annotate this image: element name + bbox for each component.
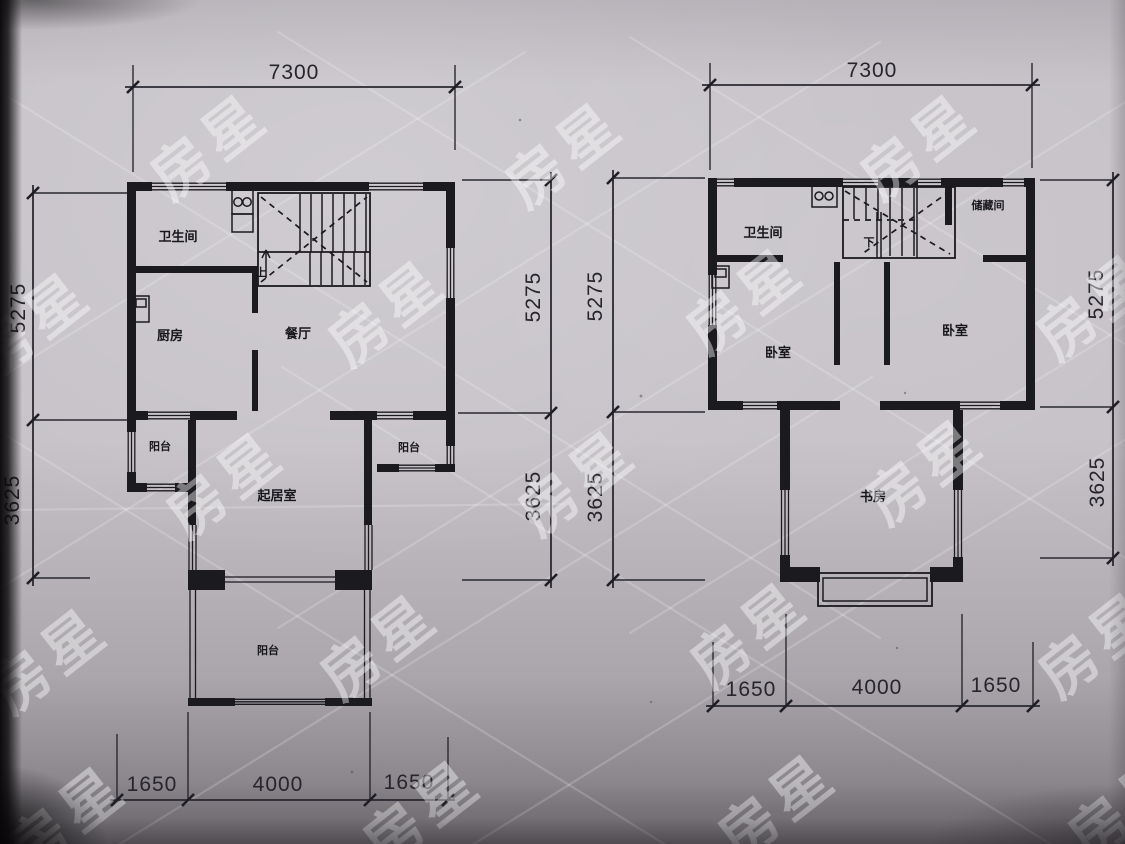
dim-label-side-lower: 3625	[1, 475, 24, 526]
dim-label-bottom-mid: 4000	[852, 676, 903, 699]
left-plan-kitchen-sink	[232, 190, 253, 232]
watermark-text: 房星	[849, 81, 991, 212]
dim-label-side-lower: 3625	[1086, 457, 1109, 508]
floorplan-drawing: 7300 5275 3625 5275 3625	[0, 0, 1125, 844]
watermark-layer: 房星 房星 房星 房星 房星 房星 房星 房星 房星 房星 房星 房星 房星 房…	[0, 81, 1125, 844]
watermark-text: 房星	[494, 89, 636, 220]
room-label-kitchen: 厨房	[157, 328, 183, 343]
stair-direction-up: 上	[256, 265, 267, 279]
dim-label-bottom-mid: 4000	[253, 773, 304, 796]
floorplan-photo: 7300 5275 3625 5275 3625	[0, 0, 1125, 844]
room-label-balcony-right: 阳台	[398, 440, 420, 454]
right-plan-kitchen-sink	[812, 186, 837, 207]
room-label-storage: 储藏间	[972, 198, 1005, 212]
watermark-text: 房星	[0, 753, 139, 844]
dim-label-bottom-right: 1650	[971, 674, 1022, 697]
watermark-text: 房星	[1025, 241, 1125, 372]
watermark-text: 房星	[0, 259, 104, 390]
watermark-text: 房星	[1027, 579, 1125, 710]
watermark-text: 房星	[675, 235, 817, 366]
dim-label-inner-upper: 5275	[522, 272, 545, 323]
watermark-text: 房星	[317, 247, 459, 378]
stair-direction-down: 下	[864, 236, 875, 249]
dim-label-top: 7300	[847, 59, 898, 82]
dim-label-inner-upper: 5275	[584, 271, 607, 322]
room-label-dining: 餐厅	[284, 326, 311, 341]
watermark-text: 房星	[707, 741, 849, 844]
dim-label-bottom-left: 1650	[127, 773, 178, 796]
room-label-bathroom: 卫生间	[158, 229, 197, 244]
watermark-text: 房星	[155, 419, 297, 550]
watermark-text: 房星	[0, 595, 121, 726]
room-label-bedroom-right: 卧室	[942, 323, 968, 338]
left-plan: 7300 5275 3625 5275 3625	[1, 61, 557, 806]
room-label-bedroom-left: 卧室	[765, 345, 791, 360]
dim-label-top: 7300	[269, 61, 320, 84]
watermark-text: 房星	[309, 581, 451, 712]
room-label-balcony-left: 阳台	[149, 439, 171, 453]
watermark-text: 房星	[1057, 741, 1125, 844]
room-label-balcony-bottom: 阳台	[257, 643, 279, 657]
left-plan-dimensions: 7300 5275 3625 5275 3625	[1, 61, 557, 806]
watermark-text: 房星	[855, 406, 997, 537]
